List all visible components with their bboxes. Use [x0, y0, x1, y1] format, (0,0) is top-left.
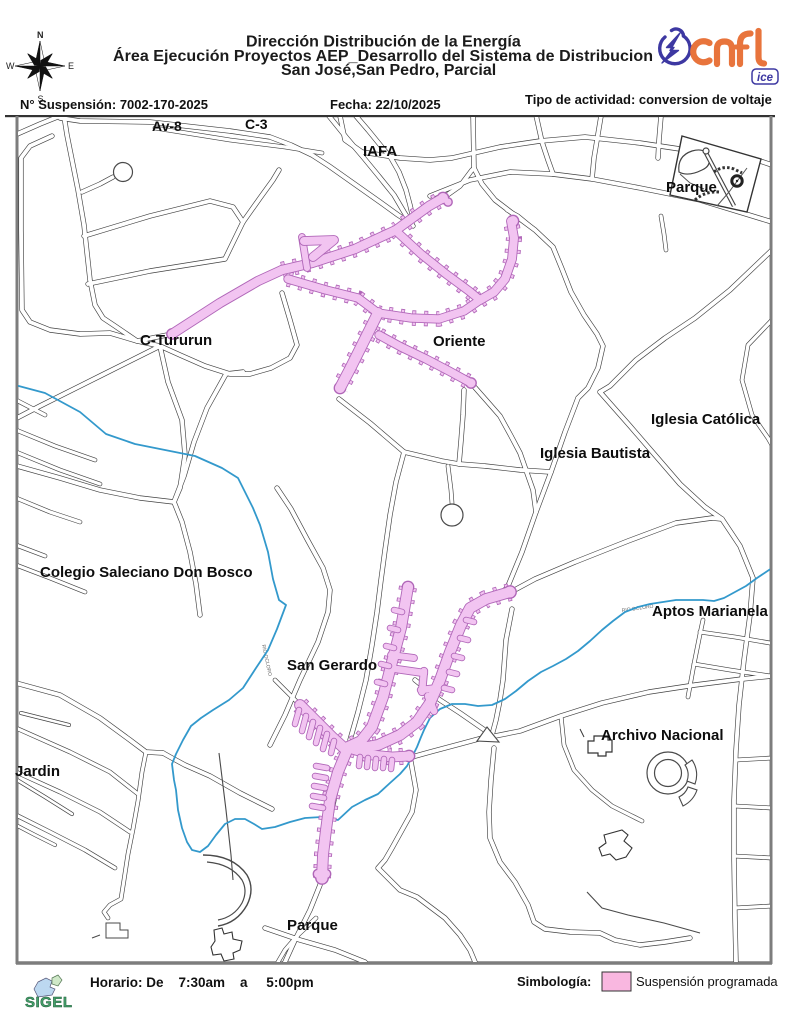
svg-text:IAFA: IAFA — [363, 143, 397, 160]
svg-text:E: E — [68, 61, 74, 71]
svg-text:Iglesia Católica: Iglesia Católica — [651, 411, 761, 428]
svg-text:W: W — [6, 61, 15, 71]
svg-text:Suspensión programada: Suspensión programada — [636, 974, 778, 989]
svg-text:Horario: De 7:30am a: Horario: De 7:30am a 5:00pm — [90, 975, 314, 990]
svg-text:Oriente: Oriente — [433, 333, 486, 350]
svg-text:N: N — [37, 30, 44, 40]
svg-text:N° Suspensión: 7002-170-2025: N° Suspensión: 7002-170-2025 — [20, 97, 208, 112]
svg-text:Jardin: Jardin — [15, 763, 60, 780]
svg-text:C-3: C-3 — [245, 116, 268, 132]
svg-text:Parque: Parque — [287, 917, 338, 934]
svg-text:Iglesia Bautista: Iglesia Bautista — [540, 445, 651, 462]
svg-text:Aptos Marianela: Aptos Marianela — [652, 603, 769, 620]
svg-text:San José,San Pedro, Parcial: San José,San Pedro, Parcial — [281, 62, 496, 79]
svg-text:SIGEL: SIGEL — [25, 994, 73, 1011]
svg-text:Tipo de actividad: conversion: Tipo de actividad: conversion de voltaje — [525, 92, 772, 107]
svg-text:Colegio Saleciano Don Bosco: Colegio Saleciano Don Bosco — [40, 564, 253, 581]
svg-text:ice: ice — [757, 72, 774, 84]
svg-text:Av-8: Av-8 — [152, 118, 182, 134]
svg-text:C-Tururun: C-Tururun — [140, 332, 212, 349]
svg-text:San Gerardo: San Gerardo — [287, 657, 377, 674]
svg-text:Parque: Parque — [666, 179, 717, 196]
svg-text:Simbología:: Simbología: — [517, 974, 591, 989]
svg-text:Fecha: 22/10/2025: Fecha: 22/10/2025 — [330, 97, 441, 112]
svg-text:Archivo Nacional: Archivo Nacional — [601, 727, 724, 744]
